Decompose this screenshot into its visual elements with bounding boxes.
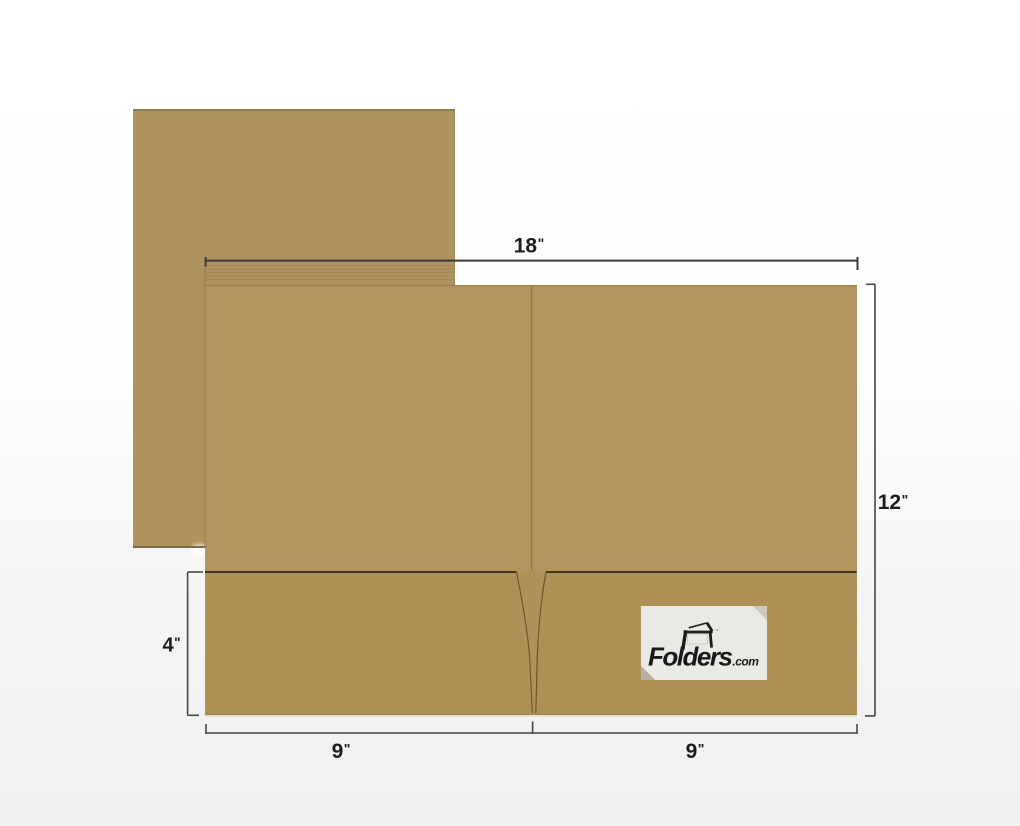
svg-text:4": 4" [162,635,180,657]
svg-text:12": 12" [878,491,909,514]
svg-text:9": 9" [686,740,705,763]
svg-text:9": 9" [332,740,351,763]
svg-text:18": 18" [514,235,545,258]
